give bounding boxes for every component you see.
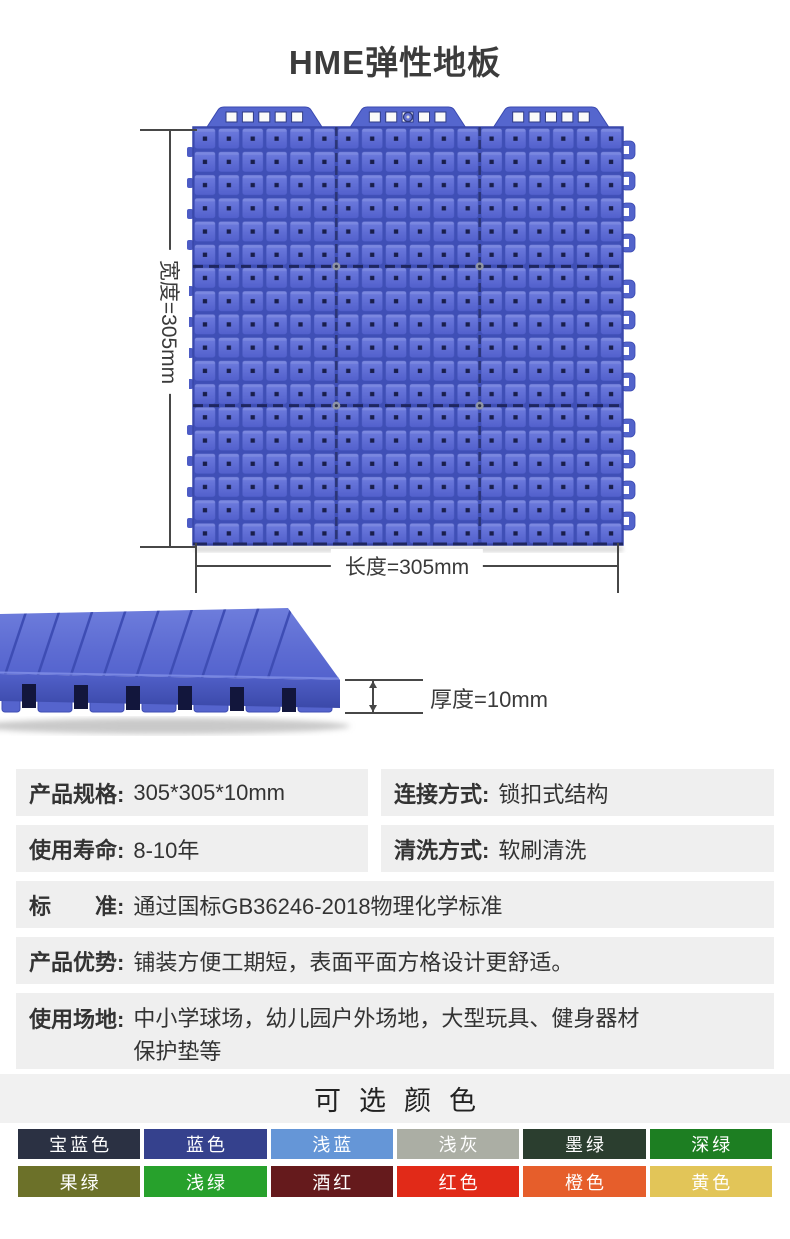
- color-swatch-row-1: 宝蓝色 蓝色 浅蓝 浅灰 墨绿 深绿: [18, 1129, 772, 1159]
- spec-label: 清洗方式:: [394, 833, 489, 865]
- color-swatch-light-gray: 浅灰: [397, 1129, 519, 1159]
- spec-label: 使用场地:: [29, 1002, 124, 1034]
- thickness-dimension-top-tick: [345, 679, 423, 681]
- thickness-arrow-up-icon: [369, 681, 377, 688]
- spec-row-cleaning: 清洗方式: 软刷清洗: [381, 825, 774, 872]
- color-swatch-wine-red: 酒红: [271, 1166, 393, 1197]
- spec-label: 使用寿命:: [29, 833, 124, 865]
- product-detail-page: HME弹性地板: [0, 0, 790, 1239]
- length-dimension-left-tick: [195, 543, 197, 593]
- spec-row-advantage: 产品优势: 铺装方便工期短，表面平面方格设计更舒适。: [16, 937, 774, 984]
- length-dimension-right-tick: [617, 543, 619, 593]
- width-dimension-label: 宽度=305mm: [151, 250, 189, 394]
- length-dimension-label: 长度=305mm: [331, 549, 483, 583]
- spec-value: 锁扣式结构: [498, 777, 608, 809]
- floor-tile-top-photo: [185, 103, 645, 561]
- spec-row-usage: 使用场地: 中小学球场，幼儿园户外场地，大型玩具、健身器材保护垫等: [16, 993, 774, 1069]
- color-swatch-light-blue: 浅蓝: [271, 1129, 393, 1159]
- spec-label: 产品优势:: [29, 945, 124, 977]
- spec-label: 标 准:: [29, 889, 124, 921]
- color-swatch-blue: 蓝色: [144, 1129, 266, 1159]
- spec-row-connection: 连接方式: 锁扣式结构: [381, 769, 774, 816]
- spec-value: 中小学球场，幼儿园户外场地，大型玩具、健身器材保护垫等: [133, 1002, 653, 1068]
- spec-row-standard: 标 准: 通过国标GB36246-2018物理化学标准: [16, 881, 774, 928]
- color-swatch-yellow: 黄色: [650, 1166, 772, 1197]
- color-swatch-red: 红色: [397, 1166, 519, 1197]
- spec-value: 8-10年: [133, 833, 199, 865]
- thickness-dimension-bottom-tick: [345, 712, 423, 714]
- spec-value: 305*305*10mm: [133, 780, 285, 806]
- page-title: HME弹性地板: [0, 36, 790, 84]
- spec-value: 软刷清洗: [498, 833, 586, 865]
- color-swatch-dark-green: 墨绿: [523, 1129, 645, 1159]
- width-dimension-bottom-tick: [140, 546, 197, 548]
- color-swatch-orange: 橙色: [523, 1166, 645, 1197]
- color-swatch-royal-blue: 宝蓝色: [18, 1129, 140, 1159]
- color-swatch-row-2: 果绿 浅绿 酒红 红色 橙色 黄色: [18, 1166, 772, 1197]
- spec-label: 产品规格:: [29, 777, 124, 809]
- spec-row-specification: 产品规格: 305*305*10mm: [16, 769, 368, 816]
- spec-row-lifespan: 使用寿命: 8-10年: [16, 825, 368, 872]
- floor-tile-side-photo: [0, 598, 560, 750]
- color-swatch-fruit-green: 果绿: [18, 1166, 140, 1197]
- color-swatch-deep-green: 深绿: [650, 1129, 772, 1159]
- thickness-dimension-label: 厚度=10mm: [430, 682, 548, 714]
- spec-value: 铺装方便工期短，表面平面方格设计更舒适。: [133, 945, 573, 977]
- spec-label: 连接方式:: [394, 777, 489, 809]
- spec-value: 通过国标GB36246-2018物理化学标准: [133, 889, 502, 921]
- colors-section-title: 可选颜色: [0, 1074, 790, 1123]
- color-swatch-light-green: 浅绿: [144, 1166, 266, 1197]
- thickness-arrow-down-icon: [369, 705, 377, 712]
